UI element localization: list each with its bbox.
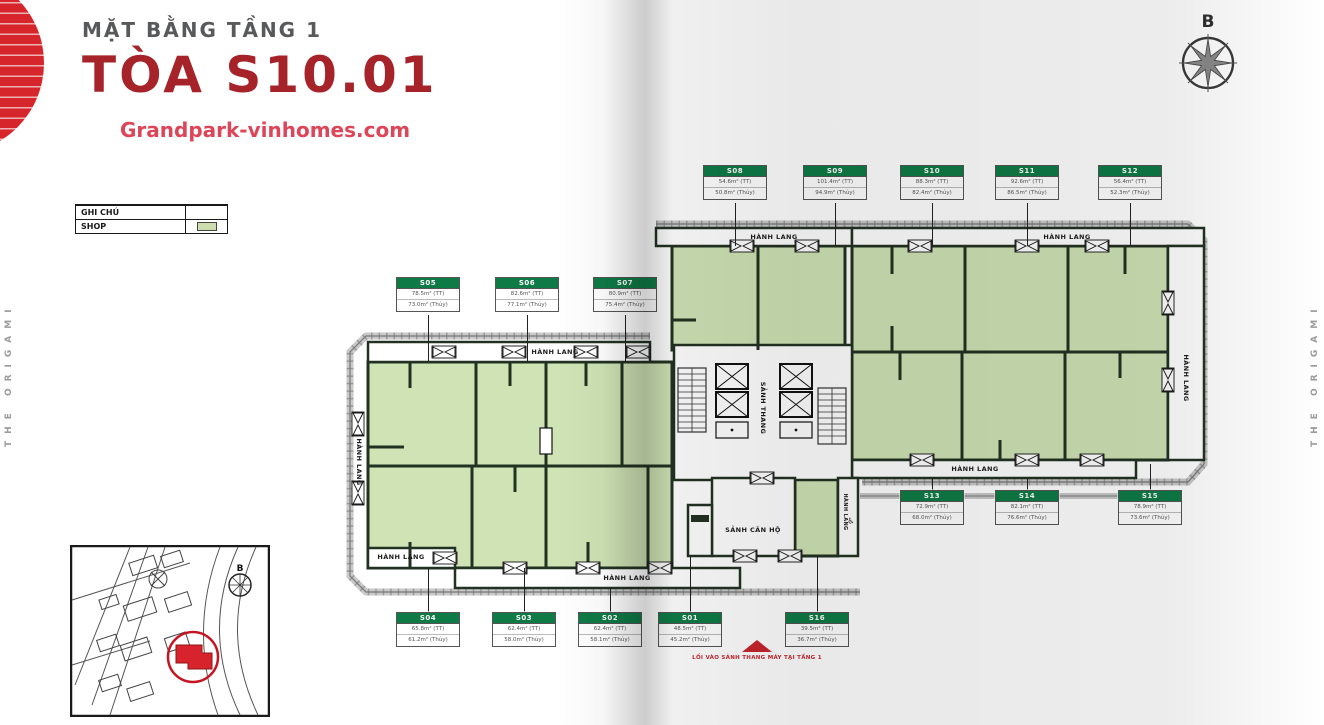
floor-plan-svg [0, 0, 1324, 725]
brochure-page: MẶT BẰNG TẦNG 1 TÒA S10.01 Grandpark-vin… [0, 0, 1324, 725]
entrance-arrow-icon [742, 640, 772, 652]
entrance-note: LỐI VÀO SẢNH THANG MÁY TẠI TẦNG 1 [692, 655, 822, 661]
